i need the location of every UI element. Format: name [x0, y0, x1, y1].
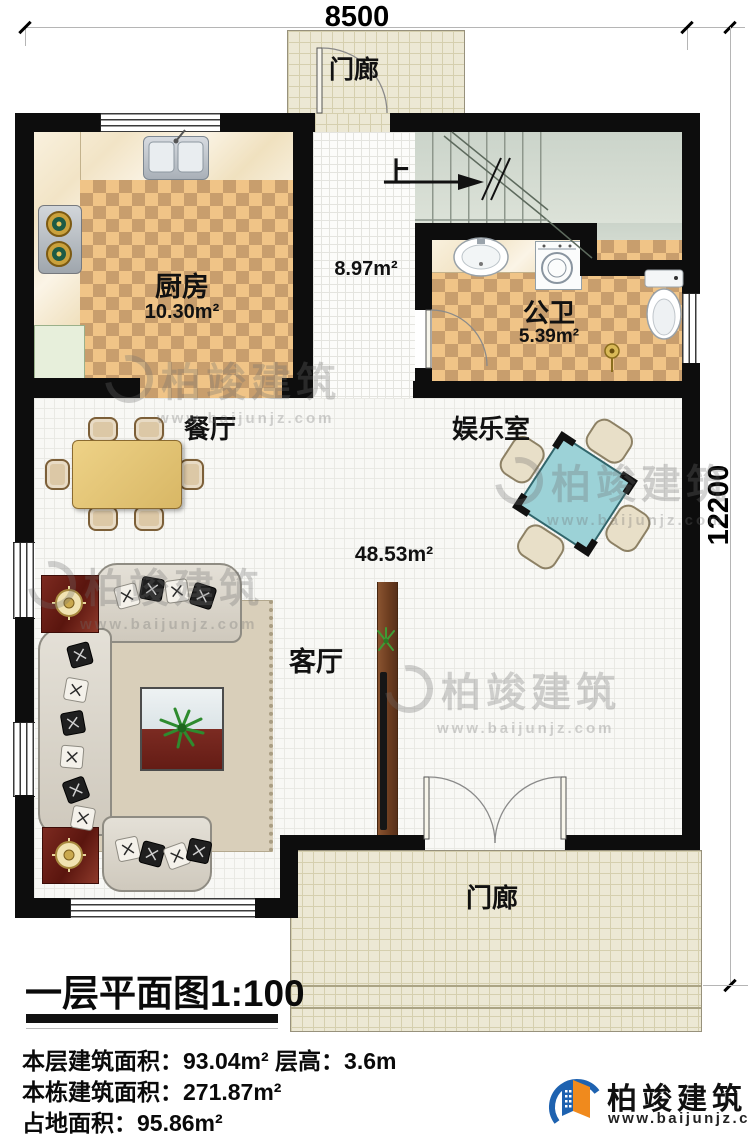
kitchen-area: 10.30m²	[120, 301, 244, 323]
side-table-top	[41, 575, 99, 633]
porch-step-line	[291, 985, 701, 987]
floor-plan-canvas: 8500 12200	[0, 0, 750, 1141]
brand-logo-icon	[545, 1070, 603, 1130]
hall-area: 8.97m²	[310, 258, 422, 280]
sofa-left	[38, 628, 112, 836]
info-footprint-area: 占地面积：95.86m²	[22, 1104, 223, 1138]
dining-chair	[88, 417, 118, 442]
wall-segment	[682, 363, 700, 850]
window	[100, 113, 222, 132]
wall-segment	[282, 378, 313, 398]
porch-bottom-label: 门廊	[437, 884, 547, 913]
dimension-height: 12200	[703, 440, 733, 570]
coffee-table	[140, 687, 224, 771]
dining-chair	[88, 506, 118, 531]
great-room-area: 48.53m²	[348, 543, 440, 566]
wall-segment	[580, 260, 682, 276]
wall-segment	[280, 835, 425, 850]
brand-url: www.baijunjz.com	[608, 1110, 750, 1127]
brand-block: 柏竣建筑 www.baijunjz.com	[545, 1070, 745, 1134]
side-table-bottom	[42, 827, 99, 884]
plan-title: 一层平面图1:100	[25, 963, 305, 1017]
dining-table	[72, 440, 182, 509]
washing-machine-body	[535, 241, 582, 290]
wall-segment	[220, 113, 315, 132]
window	[13, 722, 35, 797]
wall-segment	[15, 898, 70, 918]
sofa-bottom	[102, 816, 212, 892]
wall-segment	[415, 368, 432, 381]
info-floor-area: 本层建筑面积：93.04m² 层高：3.6m	[22, 1042, 396, 1076]
kitchen-cabinet	[34, 325, 85, 380]
wall-segment	[682, 113, 700, 293]
bathroom-area: 5.39m²	[504, 327, 594, 348]
sofa-top	[95, 563, 242, 643]
porch-step-line	[291, 1007, 701, 1009]
wall-segment	[413, 381, 700, 398]
living-label: 客厅	[283, 648, 349, 678]
porch-top-label: 门廊	[299, 57, 409, 85]
dining-chair	[45, 459, 70, 490]
window	[70, 898, 257, 918]
porch-bottom-floor	[290, 850, 702, 1032]
dining-chair	[134, 506, 164, 531]
porch-top-doorway-floor	[315, 113, 390, 132]
wall-segment	[390, 113, 700, 132]
dining-chair	[179, 459, 204, 490]
wall-segment	[15, 378, 140, 398]
dimension-line-top	[25, 27, 745, 28]
stair-up-label: 上	[380, 158, 414, 189]
kitchen-sink-body	[143, 136, 209, 180]
kitchen-label: 厨房	[120, 273, 244, 303]
wall-segment	[415, 223, 597, 240]
info-total-area: 本栋建筑面积：271.87m²	[22, 1073, 281, 1107]
dimension-ext	[687, 28, 688, 50]
wall-segment	[15, 617, 34, 722]
dimension-width: 8500	[297, 1, 417, 34]
dimension-ext	[703, 985, 748, 986]
entertainment-label: 娱乐室	[436, 415, 546, 444]
window	[682, 293, 700, 365]
wall-segment	[15, 113, 34, 542]
stair-treads	[432, 132, 542, 223]
dining-chair	[134, 417, 164, 442]
dining-label: 餐厅	[165, 415, 255, 444]
bathroom-label: 公卫	[504, 299, 594, 328]
gas-stove-body	[38, 205, 82, 274]
title-underline-thin	[26, 1028, 278, 1029]
window	[13, 542, 35, 619]
tv-screen	[380, 672, 387, 830]
dimension-ext	[25, 28, 26, 46]
title-underline	[26, 1014, 278, 1023]
wall-segment	[565, 835, 700, 850]
